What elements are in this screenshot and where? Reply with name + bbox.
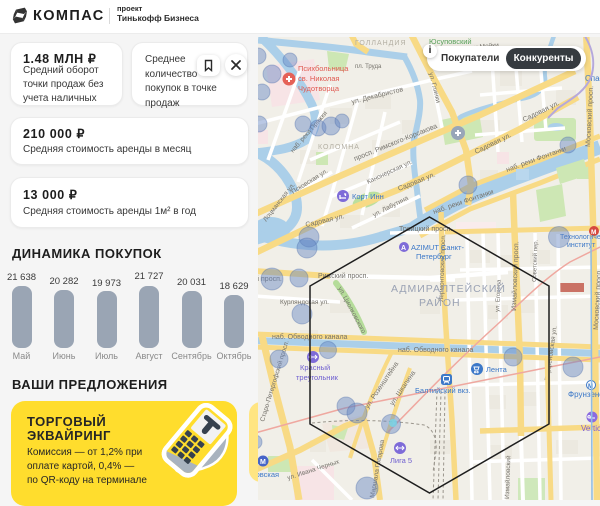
- svg-text:Vertical: Vertical: [581, 424, 600, 433]
- svg-text:НОВАЯ: НОВАЯ: [362, 37, 392, 39]
- svg-text:АДМИРАЛТЕЙСКИЙ: АДМИРАЛТЕЙСКИЙ: [391, 282, 506, 295]
- svg-text:Фрунзенская: Фрунзенская: [568, 390, 600, 399]
- svg-text:Петербург: Петербург: [416, 252, 452, 261]
- svg-text:РАЙОН: РАЙОН: [419, 296, 461, 309]
- svg-text:наб. Обводного канала: наб. Обводного канала: [398, 346, 474, 354]
- svg-text:КОЛОМНА: КОЛОМНА: [318, 144, 360, 151]
- svg-text:Красный: Красный: [300, 363, 330, 372]
- svg-text:Чудотворца: Чудотворца: [298, 84, 340, 93]
- svg-text:Лига 5: Лига 5: [390, 456, 412, 465]
- svg-text:Корт Инн: Корт Инн: [352, 192, 384, 201]
- svg-text:Психбольница: Психбольница: [298, 64, 349, 73]
- svg-text:М: М: [260, 459, 266, 466]
- svg-text:Нарвская: Нарвская: [258, 470, 279, 479]
- svg-text:Измайловский: Измайловский: [503, 455, 513, 499]
- svg-text:институт: институт: [567, 242, 596, 249]
- svg-text:A: A: [401, 245, 406, 252]
- svg-text:Балтийский вкз.: Балтийский вкз.: [415, 386, 471, 395]
- svg-text:Лента: Лента: [486, 365, 508, 374]
- svg-text:Рижский просп.: Рижский просп.: [318, 272, 368, 280]
- svg-text:AZIMUT Санкт-: AZIMUT Санкт-: [411, 243, 464, 252]
- svg-text:ГОЛЛАНДИЯ: ГОЛЛАНДИЯ: [355, 40, 407, 47]
- svg-text:треугольник: треугольник: [296, 373, 339, 382]
- svg-text:пл. Труда: пл. Труда: [355, 64, 382, 70]
- svg-text:св. Николая: св. Николая: [298, 74, 340, 83]
